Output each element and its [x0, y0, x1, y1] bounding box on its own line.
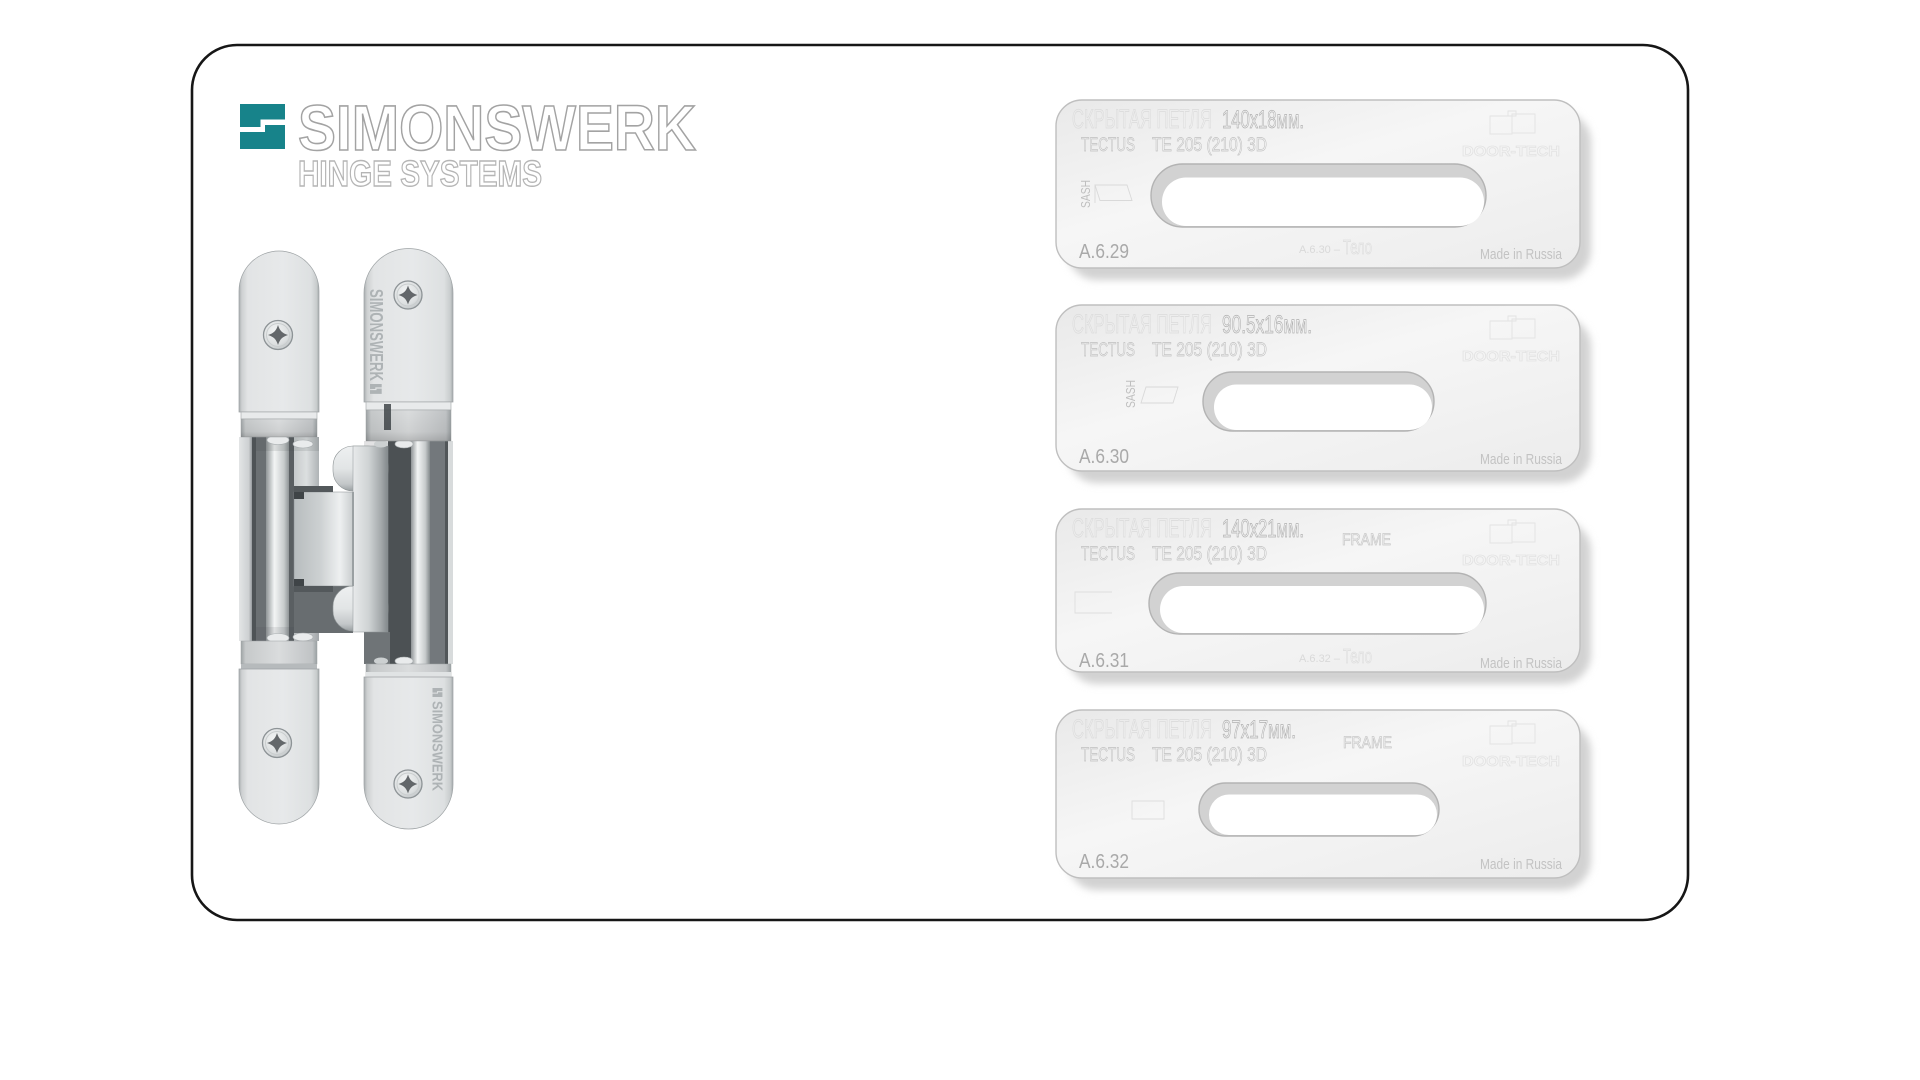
svg-text:TECTUS: TECTUS — [1081, 543, 1135, 565]
svg-text:TE 205 (210) 3D: TE 205 (210) 3D — [1152, 543, 1267, 565]
svg-text:FRAME: FRAME — [1343, 733, 1392, 752]
svg-text:HINGE SYSTEMS: HINGE SYSTEMS — [298, 153, 542, 194]
svg-text:DOOR-TECH: DOOR-TECH — [1462, 143, 1560, 160]
svg-text:SASH: SASH — [1123, 380, 1138, 408]
svg-text:SIMONSWERK: SIMONSWERK — [429, 701, 446, 791]
svg-text:СКРЫТАЯ ПЕТЛЯ: СКРЫТАЯ ПЕТЛЯ — [1072, 309, 1212, 339]
svg-text:FRAME: FRAME — [1342, 530, 1391, 549]
svg-text:TECTUS: TECTUS — [1081, 339, 1135, 361]
svg-text:140x18мм.: 140x18мм. — [1222, 106, 1304, 134]
svg-text:DOOR-TECH: DOOR-TECH — [1462, 753, 1560, 770]
svg-text:Made in Russia: Made in Russia — [1480, 451, 1563, 468]
svg-text:140x21мм.: 140x21мм. — [1222, 515, 1304, 543]
svg-text:Made in Russia: Made in Russia — [1480, 856, 1563, 873]
svg-text:TE 205 (210) 3D: TE 205 (210) 3D — [1152, 744, 1267, 766]
svg-text:СКРЫТАЯ ПЕТЛЯ: СКРЫТАЯ ПЕТЛЯ — [1072, 714, 1212, 744]
svg-text:СКРЫТАЯ ПЕТЛЯ: СКРЫТАЯ ПЕТЛЯ — [1072, 513, 1212, 543]
svg-text:97x17мм.: 97x17мм. — [1222, 716, 1296, 744]
svg-text:A.6.29: A.6.29 — [1079, 241, 1129, 263]
svg-text:СКРЫТАЯ ПЕТЛЯ: СКРЫТАЯ ПЕТЛЯ — [1072, 104, 1212, 134]
svg-text:А.6.30 –: А.6.30 – — [1299, 244, 1341, 256]
svg-text:Тело: Тело — [1343, 237, 1372, 259]
svg-text:TE 205 (210) 3D: TE 205 (210) 3D — [1152, 339, 1267, 361]
svg-text:Тело: Тело — [1343, 646, 1372, 668]
svg-text:TE 205 (210) 3D: TE 205 (210) 3D — [1152, 134, 1267, 156]
svg-text:Made in Russia: Made in Russia — [1480, 246, 1563, 263]
svg-text:TECTUS: TECTUS — [1081, 744, 1135, 766]
svg-text:DOOR-TECH: DOOR-TECH — [1462, 348, 1560, 365]
svg-text:TECTUS: TECTUS — [1081, 134, 1135, 156]
svg-text:SASH: SASH — [1078, 180, 1093, 208]
svg-text:A.6.32: A.6.32 — [1079, 851, 1129, 873]
svg-text:DOOR-TECH: DOOR-TECH — [1462, 552, 1560, 569]
svg-text:А.6.32 –: А.6.32 – — [1299, 653, 1341, 665]
svg-text:A.6.31: A.6.31 — [1079, 650, 1129, 672]
svg-text:Made in Russia: Made in Russia — [1480, 655, 1563, 672]
svg-text:A.6.30: A.6.30 — [1079, 446, 1129, 468]
svg-text:SIMONSWERK: SIMONSWERK — [366, 289, 386, 381]
svg-text:90.5x16мм.: 90.5x16мм. — [1222, 311, 1312, 339]
